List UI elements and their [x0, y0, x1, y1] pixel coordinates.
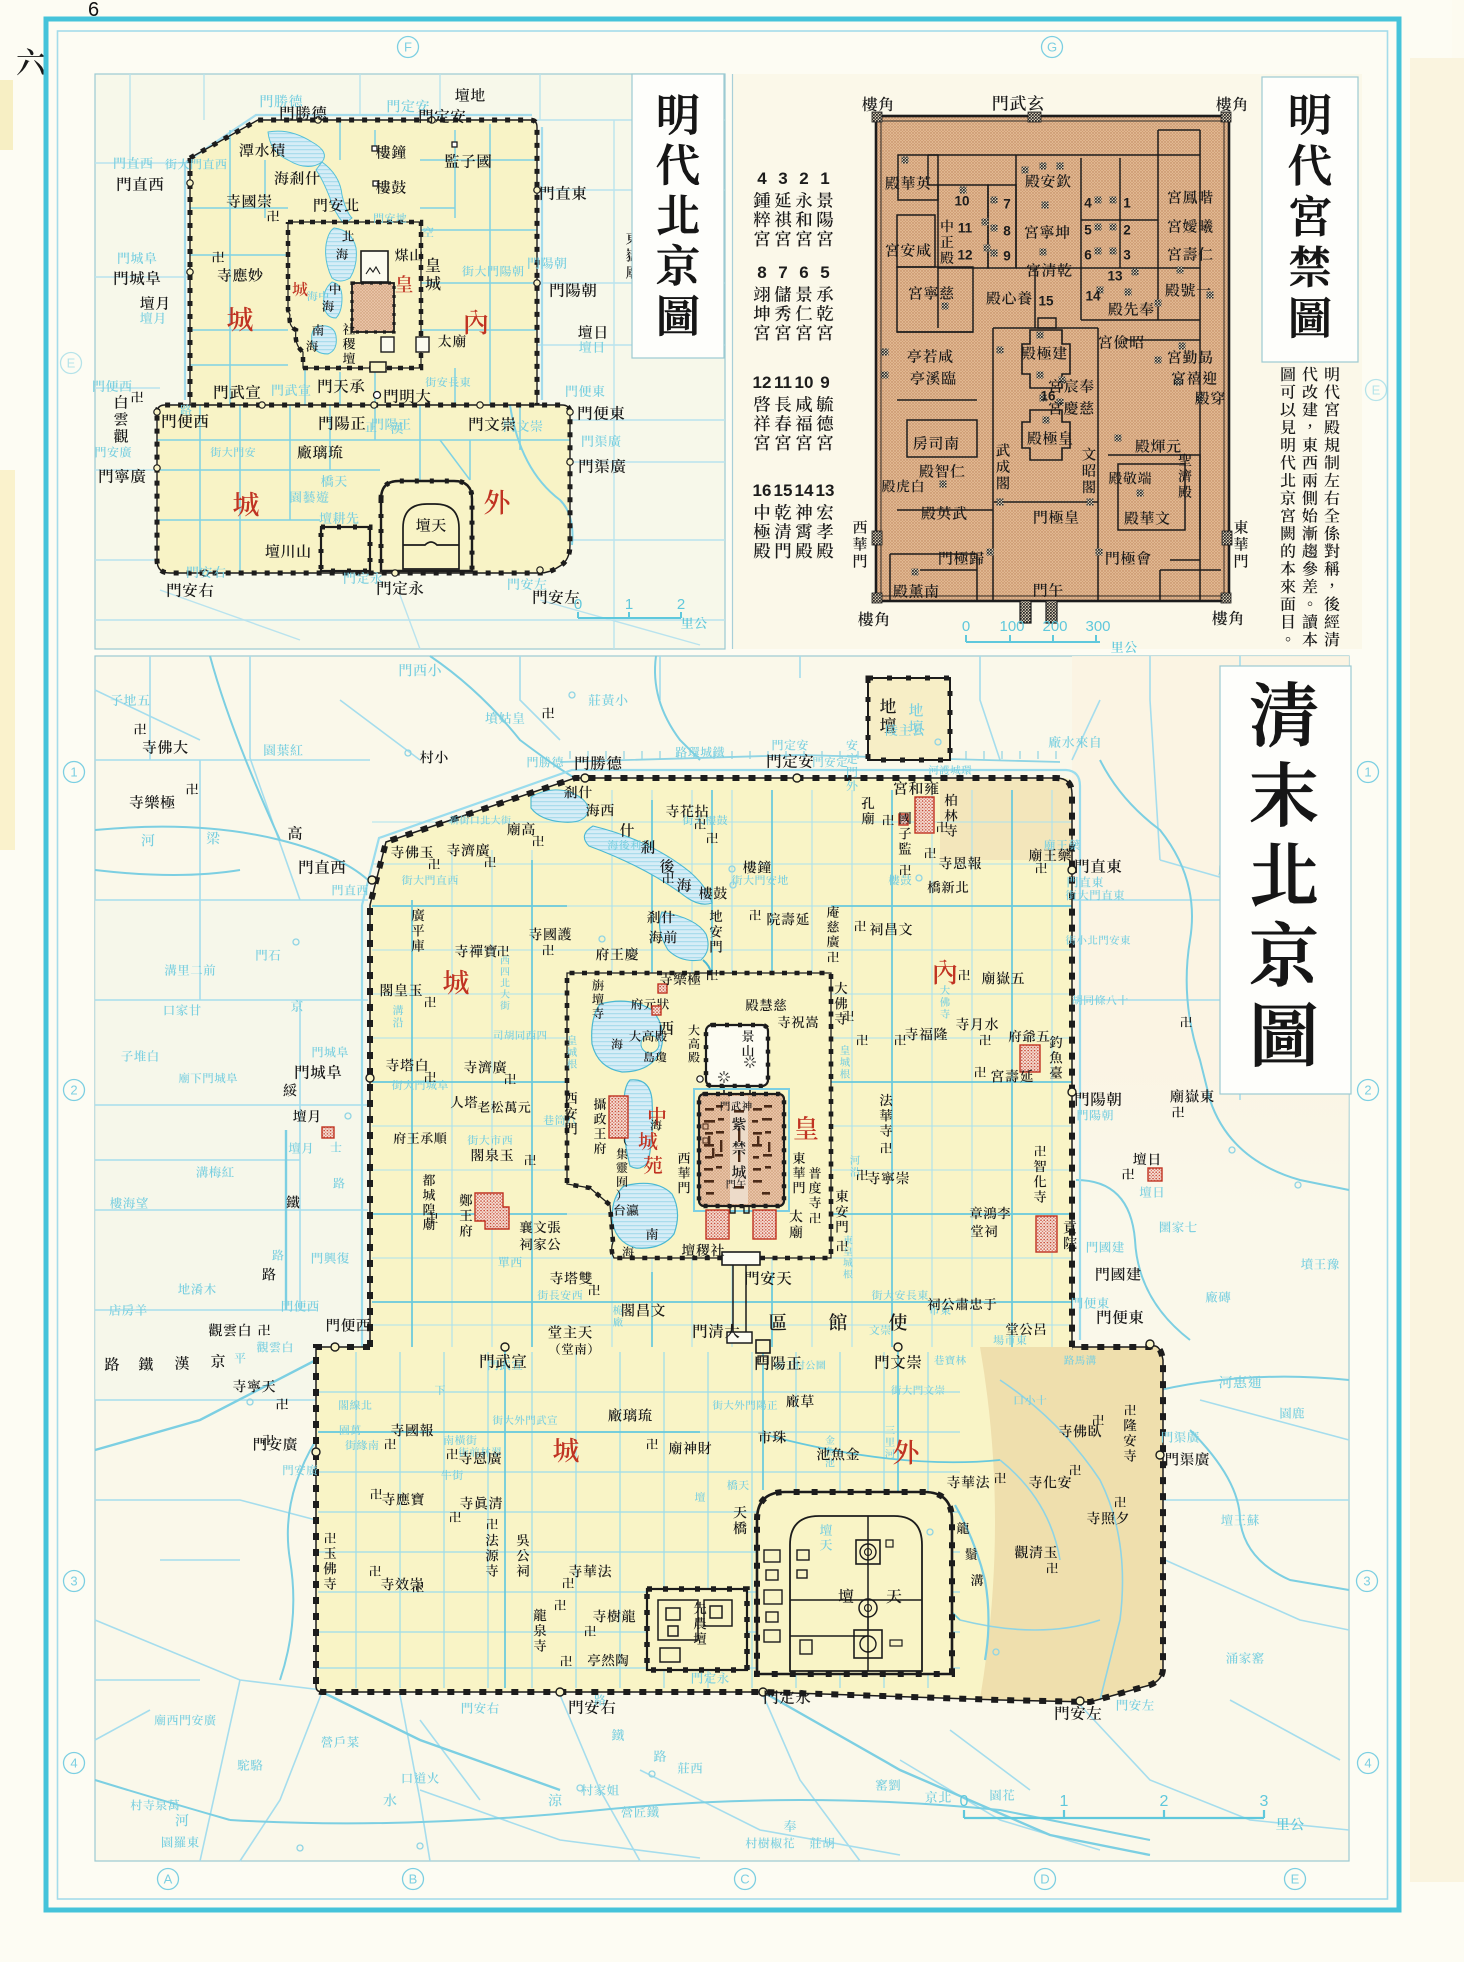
svg-text:E: E [1372, 383, 1381, 398]
svg-text:0: 0 [574, 596, 582, 613]
svg-text:300: 300 [1085, 618, 1110, 635]
svg-text:3: 3 [778, 169, 787, 188]
svg-text:2: 2 [799, 169, 808, 188]
svg-text:8: 8 [757, 263, 766, 282]
svg-text:6: 6 [1084, 248, 1092, 263]
svg-text:B: B [409, 1872, 418, 1887]
svg-text:8: 8 [1003, 224, 1011, 239]
svg-text:4: 4 [70, 1756, 77, 1771]
svg-text:E: E [1291, 1872, 1300, 1887]
svg-text:2: 2 [1123, 223, 1131, 238]
svg-text:16: 16 [753, 481, 772, 500]
svg-text:200: 200 [1042, 618, 1067, 635]
svg-text:9: 9 [1003, 249, 1011, 264]
svg-text:E: E [67, 356, 76, 371]
svg-text:0: 0 [962, 618, 970, 635]
svg-text:2: 2 [677, 596, 685, 613]
svg-text:11: 11 [774, 373, 792, 392]
svg-text:1: 1 [625, 596, 633, 613]
svg-text:14: 14 [795, 481, 814, 500]
svg-text:6: 6 [799, 263, 808, 282]
svg-text:F: F [404, 40, 412, 55]
svg-text:3: 3 [1123, 248, 1131, 263]
svg-text:4: 4 [757, 169, 767, 188]
svg-text:10: 10 [954, 194, 969, 209]
svg-text:15: 15 [774, 481, 793, 500]
svg-text:1: 1 [1364, 765, 1371, 780]
svg-text:11: 11 [958, 221, 973, 236]
svg-text:1: 1 [1060, 1793, 1069, 1810]
svg-text:4: 4 [1084, 196, 1092, 211]
svg-text:3: 3 [1363, 1574, 1370, 1589]
svg-text:13: 13 [816, 481, 835, 500]
svg-text:2: 2 [1160, 1793, 1169, 1810]
svg-text:5: 5 [820, 263, 829, 282]
svg-text:D: D [1040, 1872, 1049, 1887]
svg-text:12: 12 [753, 373, 772, 392]
svg-text:15: 15 [1038, 294, 1054, 309]
svg-text:A: A [164, 1872, 173, 1887]
svg-text:100: 100 [999, 618, 1024, 635]
svg-text:4: 4 [1364, 1756, 1371, 1771]
svg-text:10: 10 [795, 373, 814, 392]
svg-text:7: 7 [1003, 197, 1011, 212]
svg-text:1: 1 [1123, 196, 1131, 211]
svg-text:16: 16 [1040, 389, 1056, 404]
svg-text:1: 1 [820, 169, 829, 188]
svg-text:9: 9 [820, 373, 829, 392]
svg-text:3: 3 [70, 1574, 77, 1589]
svg-text:7: 7 [778, 263, 787, 282]
svg-text:G: G [1047, 40, 1057, 55]
svg-text:5: 5 [1084, 223, 1092, 238]
svg-text:2: 2 [1364, 1083, 1371, 1098]
svg-text:2: 2 [70, 1083, 77, 1098]
svg-text:12: 12 [957, 248, 972, 263]
svg-text:0: 0 [960, 1793, 969, 1810]
svg-text:14: 14 [1085, 289, 1101, 304]
svg-text:C: C [740, 1872, 749, 1887]
svg-text:13: 13 [1107, 269, 1123, 284]
svg-text:1: 1 [70, 765, 77, 780]
svg-text:3: 3 [1260, 1793, 1269, 1810]
